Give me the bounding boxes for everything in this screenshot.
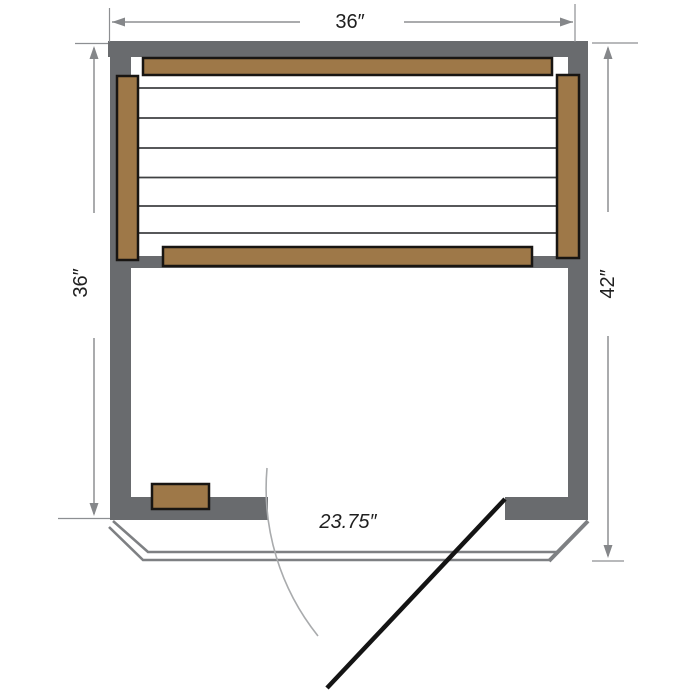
dim-label-right-depth: 42″ — [597, 269, 619, 298]
dim-right-arrow-up — [604, 46, 613, 59]
bench-front-plank — [163, 247, 532, 266]
dimension-top: 36″ — [110, 4, 576, 42]
dim-label-door-width: 23.75″ — [318, 511, 377, 533]
top-wall — [108, 41, 588, 57]
dimension-left: 36″ — [58, 44, 110, 519]
dim-left-arrow-up — [90, 46, 99, 59]
bench-slats — [139, 88, 556, 233]
heater-box — [152, 484, 209, 509]
bench-planks — [117, 58, 579, 266]
dim-top-arrow-left — [112, 18, 125, 27]
dim-label-top-width: 36″ — [335, 11, 364, 33]
bench-backrest-plank — [143, 58, 552, 75]
dim-top-arrow-right — [560, 18, 573, 27]
bench-left-plank — [117, 76, 138, 260]
bench-right-plank — [557, 75, 579, 258]
sauna-floor-plan-diagram: 36″ 36″ 42″ 23.75″ — [0, 0, 700, 700]
base-right-bevel — [549, 521, 588, 561]
floor-plan-canvas: 36″ 36″ 42″ 23.75″ — [0, 0, 700, 700]
dim-left-arrow-down — [90, 503, 99, 516]
bottom-wall-right — [505, 497, 588, 520]
dim-label-left-depth: 36″ — [70, 268, 92, 297]
dim-right-arrow-down — [604, 545, 613, 558]
walls — [108, 41, 588, 520]
corner-notch-right — [553, 58, 569, 75]
dimension-right: 42″ — [592, 43, 638, 561]
corner-notch-left — [131, 58, 143, 76]
